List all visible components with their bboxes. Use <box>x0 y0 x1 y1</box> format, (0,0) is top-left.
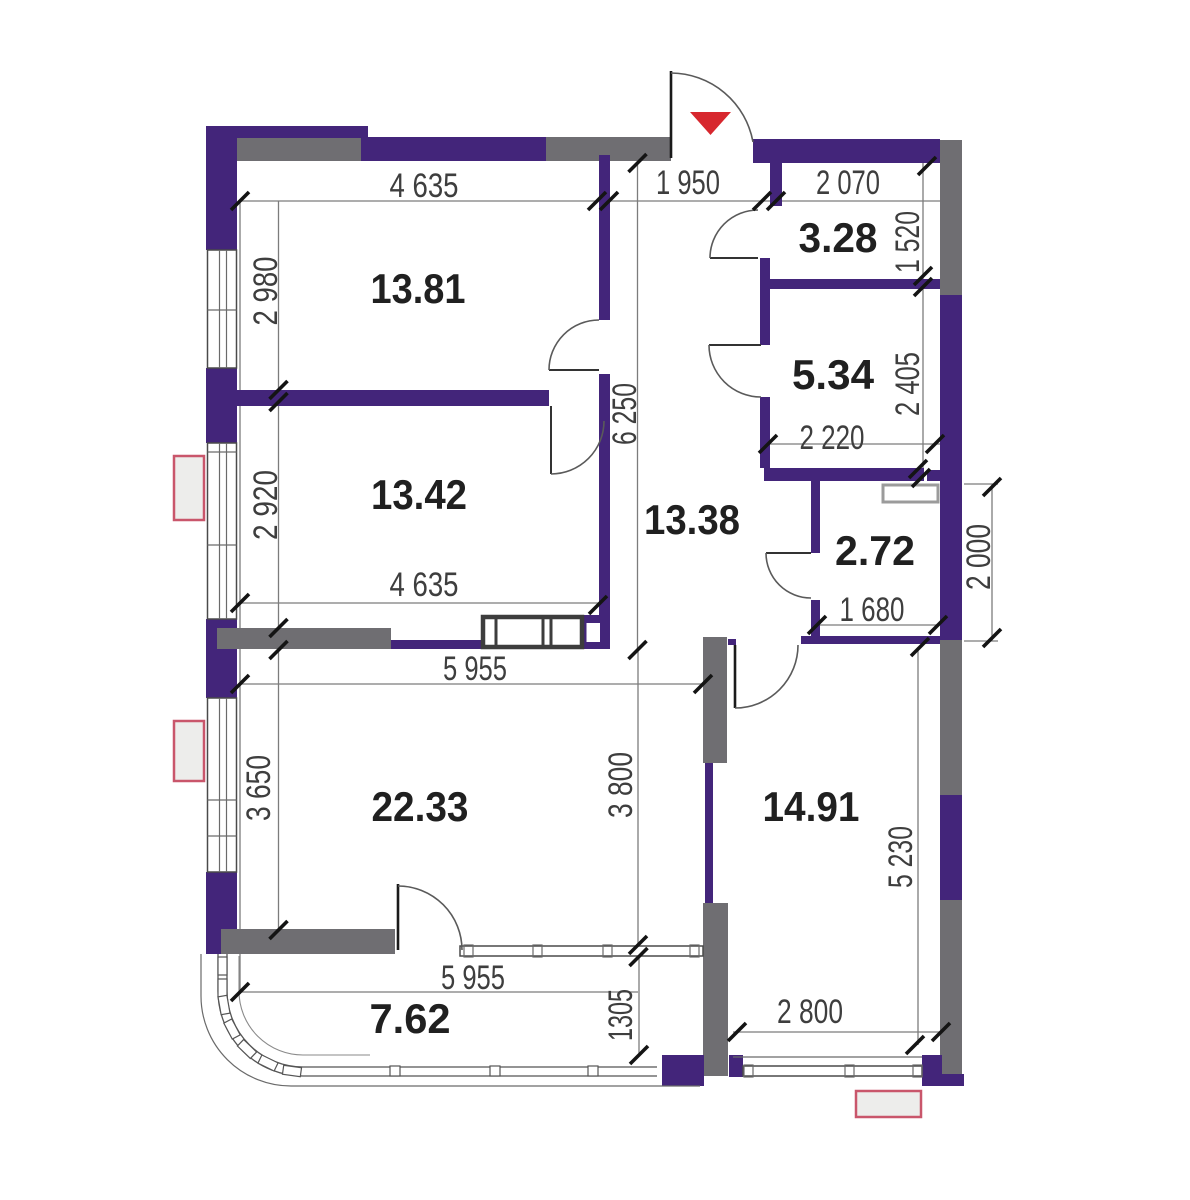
svg-text:3.28: 3.28 <box>799 214 878 261</box>
svg-text:2 070: 2 070 <box>816 164 880 202</box>
svg-text:5 955: 5 955 <box>443 650 507 688</box>
svg-text:5 230: 5 230 <box>882 826 920 888</box>
svg-text:13.81: 13.81 <box>371 265 466 312</box>
svg-text:7.62: 7.62 <box>370 995 451 1042</box>
svg-text:2 405: 2 405 <box>889 352 927 416</box>
svg-text:2 220: 2 220 <box>800 419 865 457</box>
svg-text:1 950: 1 950 <box>656 164 720 202</box>
svg-text:13.38: 13.38 <box>644 496 740 543</box>
svg-text:2 920: 2 920 <box>247 470 285 540</box>
svg-text:6 250: 6 250 <box>606 383 644 445</box>
svg-text:4 635: 4 635 <box>390 566 459 604</box>
svg-text:3 650: 3 650 <box>240 755 278 821</box>
svg-text:4 635: 4 635 <box>390 167 459 205</box>
svg-text:1 520: 1 520 <box>889 211 927 273</box>
svg-text:14.91: 14.91 <box>763 783 860 830</box>
svg-text:2 800: 2 800 <box>777 993 843 1031</box>
svg-text:22.33: 22.33 <box>372 783 469 830</box>
svg-text:5 955: 5 955 <box>441 959 505 997</box>
svg-text:5.34: 5.34 <box>792 351 875 398</box>
svg-text:1305: 1305 <box>602 989 640 1041</box>
svg-text:2 000: 2 000 <box>960 524 998 590</box>
svg-text:13.42: 13.42 <box>371 471 467 518</box>
svg-text:2.72: 2.72 <box>835 527 915 574</box>
svg-text:3 800: 3 800 <box>602 752 640 818</box>
svg-text:2 980: 2 980 <box>247 257 285 326</box>
svg-text:1 680: 1 680 <box>840 591 905 629</box>
